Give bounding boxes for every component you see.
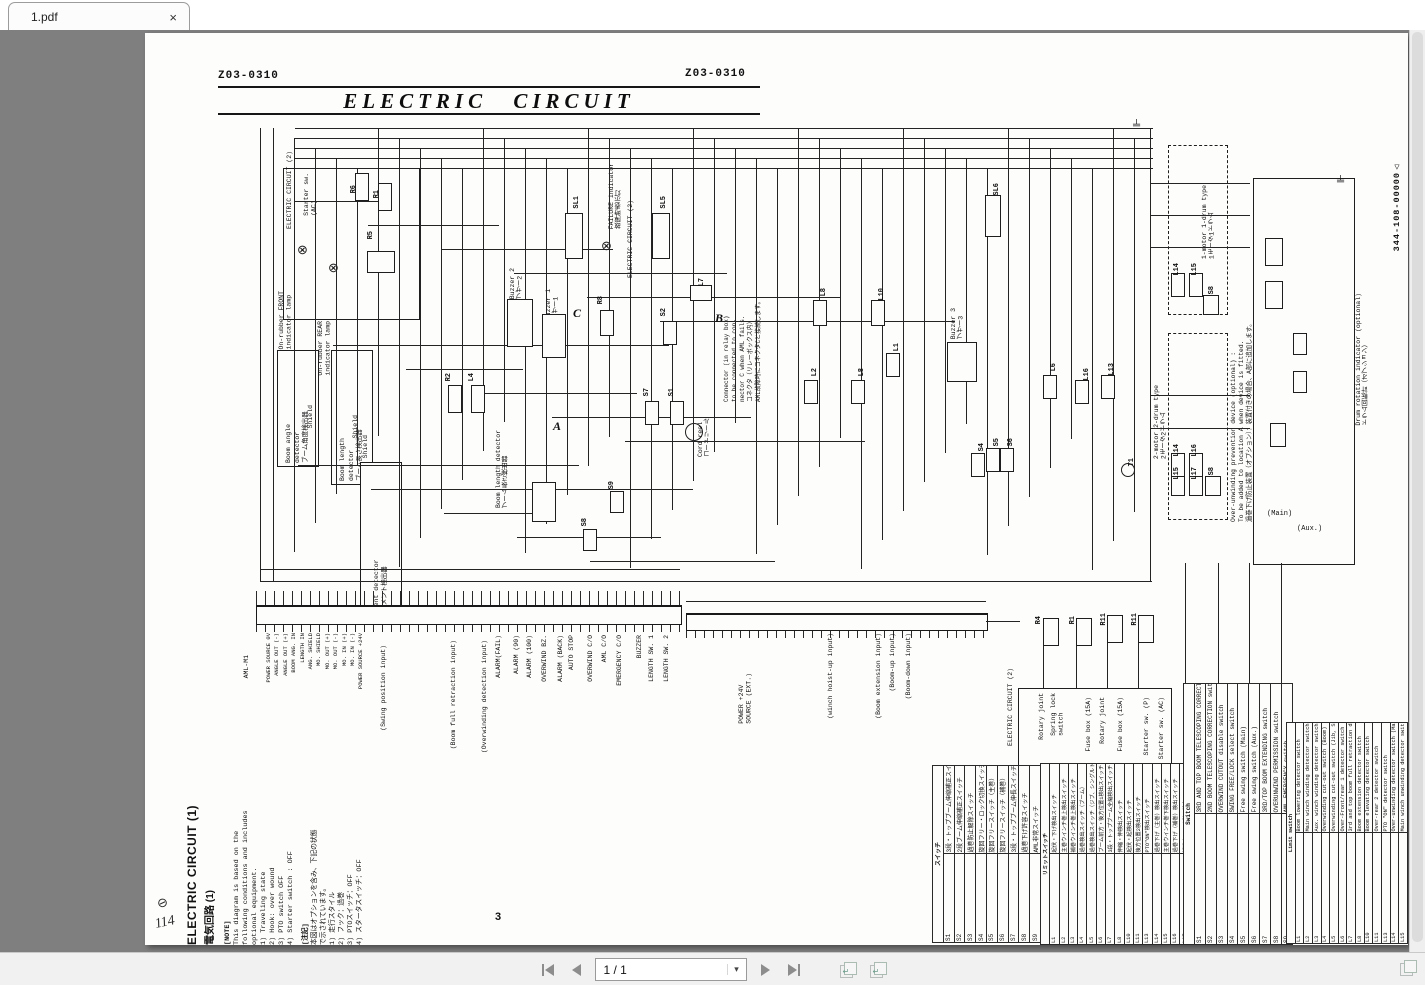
component-tag: L13	[1108, 363, 1116, 376]
last-page-button[interactable]	[784, 960, 804, 980]
component-tag: SL6	[993, 183, 1001, 196]
wire	[1134, 138, 1135, 512]
component-box	[851, 380, 865, 404]
component-tag: L8	[858, 368, 866, 376]
vertical-scrollbar[interactable]	[1409, 30, 1425, 952]
wire	[986, 621, 1020, 622]
aml-terminal-label: MO. OUT (-)	[333, 633, 339, 669]
wire	[1150, 395, 1250, 396]
component-box	[1171, 273, 1185, 297]
wire	[294, 138, 295, 552]
component-tag: L16	[1191, 444, 1199, 457]
wire	[903, 128, 904, 511]
wire	[1138, 641, 1139, 688]
component-box	[645, 401, 659, 425]
table-limit_jp: リミットスイッチL1起伏・下げ検出スイッチL2主巻ウインチ巻上検出スイッチL3補…	[1040, 763, 1173, 945]
wire	[504, 138, 505, 422]
wire	[625, 441, 865, 442]
wire	[295, 128, 1153, 129]
signal-label: (winch hoist-up input)	[827, 633, 834, 719]
signal-label: LENGTH SW. 1	[648, 635, 655, 682]
aml-terminal-label: MO. IN (+)	[342, 633, 348, 666]
pdf-toolbar: 1 / 1 ▾ ↵ ↵	[0, 952, 1425, 985]
component-box	[985, 195, 1001, 237]
aml-terminal-label: POWER SOURCE 0V	[266, 633, 272, 683]
wire	[315, 148, 316, 523]
viewer-canvas: Z03-0310 Z03-0310 ELECTRIC CIRCUIT ELECT…	[0, 30, 1425, 952]
scrollbar-thumb[interactable]	[1412, 32, 1423, 942]
component-box	[532, 482, 556, 522]
component-box	[610, 491, 624, 513]
table-limit_en: Limit switchL1Boom lowering detector swi…	[1286, 722, 1408, 944]
component-tag: L6	[1050, 363, 1058, 371]
pdf-viewer-window: 1.pdf × Z03-0310 Z03-0310 ELECTRIC CIRCU…	[0, 0, 1425, 985]
component-box	[1270, 423, 1286, 447]
wire	[1185, 563, 1186, 688]
wire	[1150, 215, 1250, 216]
aml-terminal-label: LENGTH IN	[300, 633, 306, 663]
wire	[1150, 428, 1250, 429]
component-box	[542, 314, 566, 358]
component-box	[1189, 273, 1203, 297]
component-tag: T1	[1128, 458, 1136, 466]
component-tag: R11	[1131, 613, 1139, 626]
signal-label: LENGTH SW. 2	[663, 635, 670, 682]
elec2-item-label: Starter sw. (AC)	[1158, 697, 1165, 759]
wire	[686, 601, 986, 602]
component-box	[804, 380, 818, 404]
signal-label: AUTO STOP	[568, 635, 575, 670]
wire	[798, 128, 799, 496]
wire	[1076, 644, 1077, 688]
component-tag: R8	[597, 296, 605, 304]
component-tag: SL5	[660, 196, 668, 209]
signal-label: BUZZER	[636, 635, 643, 658]
component-box	[670, 401, 684, 425]
signal-label: OVERWIND C/O	[587, 635, 594, 682]
component-tag: L17	[1191, 467, 1199, 480]
wire	[1281, 563, 1282, 688]
component-box	[471, 385, 485, 413]
corner-pages-button[interactable]	[1395, 956, 1421, 980]
component-box	[600, 310, 614, 336]
component-tag: R4	[1035, 616, 1043, 624]
wire	[660, 321, 955, 322]
component-tag: R2	[445, 373, 453, 381]
component-box	[947, 342, 977, 382]
signal-label: (Overwinding detection input)	[481, 640, 488, 753]
chevron-down-icon[interactable]: ▾	[727, 964, 746, 975]
component-box	[886, 353, 900, 377]
signal-label: ALARM(FAIL)	[495, 635, 502, 678]
wire	[777, 168, 778, 525]
table-switch_en: SwitchS13RD AND TOP BOOM TELESCOPING COR…	[1183, 683, 1282, 945]
aml-terminal-label: ANGLE OUT (+)	[283, 633, 289, 676]
first-page-button[interactable]	[538, 960, 558, 980]
component-tag: L16	[1083, 368, 1091, 381]
wire	[1043, 644, 1044, 688]
component-box	[813, 300, 827, 326]
aml-terminal-label: POWER SOURCE +24V	[358, 633, 364, 689]
component-tag: R5	[367, 231, 375, 239]
wire	[295, 168, 1153, 169]
table-limit_en: Limit switchL1Boom lowering detector swi…	[1286, 722, 1408, 944]
signal-label: ALARM (BACK)	[557, 635, 564, 682]
wire	[1249, 563, 1250, 688]
close-icon[interactable]: ×	[169, 10, 189, 25]
component-tag: S8	[1208, 286, 1216, 294]
signal-label: ALARM (90)	[513, 635, 520, 674]
component-box	[1265, 281, 1283, 309]
page-indicator: 1 / 1	[596, 963, 727, 977]
aml-terminal-label: MO. IN (-)	[350, 633, 356, 666]
aml-terminal-label: ANGLE OUT (-)	[274, 633, 280, 676]
component-box	[663, 321, 677, 345]
wire	[1050, 148, 1051, 468]
component-tag: S5	[993, 438, 1001, 446]
component-tag: L7	[698, 278, 706, 286]
component-tag: S2	[660, 308, 668, 316]
next-page-button[interactable]	[757, 960, 774, 980]
wire	[1029, 138, 1030, 497]
wire	[479, 393, 637, 394]
tab-bar: 1.pdf ×	[0, 0, 1425, 31]
table-switch_jp: スイッチS13段・トップブーム伸縮補正スイッチS22段ブーム伸縮補正スイッチS3…	[932, 765, 1030, 943]
elec2-item-label: Fuse box (15A)	[1117, 697, 1124, 752]
page-transfer-left-icon[interactable]: ↵	[838, 961, 858, 979]
component-box	[871, 300, 885, 326]
component-tag: SL1	[573, 196, 581, 209]
wire	[406, 369, 523, 370]
elec2-item-label: Rotary joint	[1038, 693, 1045, 740]
wire	[368, 225, 499, 226]
component-tag: L14	[1173, 263, 1181, 276]
signal-label: OVERWIND BZ.	[541, 635, 548, 682]
wire	[714, 138, 715, 452]
wire	[1218, 563, 1219, 688]
component-tag: S6	[1007, 438, 1015, 446]
wire	[924, 138, 925, 482]
schematic-layer: R6R1R5R2L4SL1SL5SL6R8S2S7S1S9S8L7L8L10L1…	[145, 33, 1408, 945]
component-tag: L15	[1173, 467, 1181, 480]
aml-terminal-label: MO. OUT (+)	[325, 633, 331, 669]
component-tag: R1	[1069, 616, 1077, 624]
wire	[945, 148, 946, 453]
tab-title: 1.pdf	[9, 10, 169, 24]
aml-terminal-label: BOOM ANG. IN	[291, 633, 297, 673]
wire	[333, 345, 669, 346]
wire	[295, 201, 385, 202]
previous-page-button[interactable]	[568, 960, 585, 980]
component-box	[652, 213, 670, 259]
wire	[378, 128, 379, 436]
component-tag: R6	[350, 185, 358, 193]
component-tag: L2	[811, 368, 819, 376]
component-tag: L15	[1191, 263, 1199, 276]
component-tag: L4	[468, 373, 476, 381]
wire	[882, 168, 883, 540]
component-tag: R1	[373, 190, 381, 198]
component-tag: L8	[820, 288, 828, 296]
wire	[1113, 128, 1114, 541]
wire	[441, 158, 442, 509]
elec2-item-label: Spring lockswitch	[1050, 693, 1065, 736]
signal-label: ALARM (100)	[526, 635, 533, 678]
component-box	[1107, 615, 1123, 643]
elec2-item-label: Starter sw. (P)	[1143, 697, 1150, 756]
signal-label: (Boom-up input)	[889, 633, 896, 692]
location-letter: C	[573, 306, 581, 321]
aml-terminal-label: ANG. SHIELD	[308, 633, 314, 669]
component-box	[1043, 375, 1057, 399]
wire	[399, 138, 400, 567]
wire	[1150, 128, 1151, 581]
wire	[525, 148, 526, 553]
wire	[420, 148, 421, 538]
component-box	[1205, 476, 1221, 496]
wire	[1107, 641, 1108, 688]
wire	[295, 158, 1153, 159]
component-box	[583, 529, 597, 551]
wire	[1071, 158, 1072, 439]
wire	[298, 465, 579, 466]
signal-label: AML C/O	[601, 635, 608, 662]
component-box	[1043, 618, 1059, 646]
component-box	[448, 385, 462, 413]
component-tag: R11	[1100, 613, 1108, 626]
wire	[588, 128, 589, 466]
component-box	[507, 299, 533, 347]
wire	[260, 581, 1152, 582]
wire	[840, 148, 841, 438]
wire	[756, 158, 757, 554]
wire	[735, 148, 736, 423]
component-box	[971, 453, 985, 477]
component-tag: S4	[978, 443, 986, 451]
wire	[357, 168, 358, 465]
wire	[273, 128, 274, 581]
wire	[260, 569, 680, 570]
component-tag: S7	[643, 388, 651, 396]
table-switch_jp: スイッチS13段・トップブーム伸縮補正スイッチS22段ブーム伸縮補正スイッチS3…	[932, 765, 1041, 943]
wire	[630, 148, 631, 568]
elec2-item-label: Rotary joint	[1099, 697, 1106, 744]
wire	[295, 148, 1153, 149]
component-tag: L1	[893, 343, 901, 351]
wire	[966, 158, 967, 424]
aml-terminal-label: MO. SHIELD	[316, 633, 322, 666]
signal-label: (Boom extension input)	[875, 633, 882, 719]
pdf-page: Z03-0310 Z03-0310 ELECTRIC CIRCUIT ELECT…	[145, 33, 1408, 945]
component-box	[367, 251, 395, 273]
component-box	[1101, 375, 1115, 399]
component-box	[1293, 333, 1307, 355]
component-box	[1076, 618, 1092, 646]
document-tab[interactable]: 1.pdf ×	[8, 2, 190, 31]
component-box	[1075, 380, 1089, 404]
component-box	[1203, 295, 1219, 315]
wire	[336, 158, 337, 494]
signal-label: (Boom-down input)	[905, 633, 912, 699]
wire	[1092, 168, 1093, 570]
component-box	[986, 448, 1000, 472]
wire	[260, 128, 261, 581]
location-letter: A	[553, 419, 561, 434]
signal-label: (Swing position input)	[380, 645, 387, 731]
table-switch_en: SwitchS13RD AND TOP BOOM TELESCOPING COR…	[1183, 683, 1293, 945]
table-limit_jp: リミットスイッチL1起伏・下げ検出スイッチL2主巻ウインチ巻上検出スイッチL3補…	[1040, 763, 1190, 945]
signal-label: (Boom full retraction input)	[450, 640, 457, 749]
component-tag: S8	[1208, 467, 1216, 475]
elec2-item-label: Fuse box (15A)	[1085, 697, 1092, 752]
location-letter: B	[715, 311, 723, 326]
wire	[295, 138, 1153, 139]
component-box	[690, 285, 712, 301]
signal-label: EMERGENCY C/O	[616, 635, 623, 686]
wire	[462, 168, 463, 480]
component-tag: S1	[668, 388, 676, 396]
component-box	[1138, 615, 1154, 643]
component-box	[1293, 371, 1307, 393]
component-box	[1265, 238, 1283, 266]
wire	[590, 561, 775, 562]
component-tag: L10	[878, 288, 886, 301]
wire	[1150, 247, 1250, 248]
component-tag: S9	[608, 481, 616, 489]
page-transfer-right-icon[interactable]: ↵	[868, 961, 888, 979]
component-tag: L14	[1173, 444, 1181, 457]
wire	[693, 128, 694, 481]
component-box	[565, 213, 583, 259]
component-tag: S8	[581, 518, 589, 526]
wire	[861, 158, 862, 569]
wire	[609, 138, 610, 437]
page-indicator-box[interactable]: 1 / 1 ▾	[595, 958, 747, 981]
component-box	[1000, 448, 1014, 472]
wire	[1150, 183, 1250, 184]
